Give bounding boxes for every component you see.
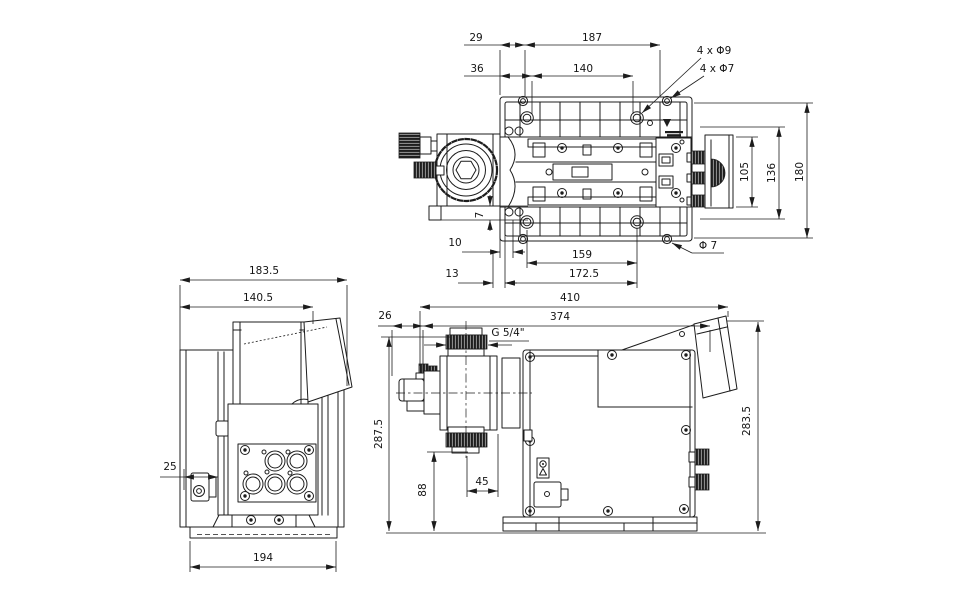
dosing-head-top xyxy=(399,133,500,220)
dim-26: 26 xyxy=(378,310,392,322)
discharge-valve xyxy=(446,328,487,356)
control-cube-front xyxy=(233,318,352,404)
knurled-knob-top xyxy=(414,162,436,178)
dim-287-5: 287.5 xyxy=(373,419,385,449)
dim-7: 7 xyxy=(474,212,486,219)
thread-label: G 5/4" xyxy=(491,327,524,339)
dim-283-5: 283.5 xyxy=(741,406,753,436)
control-cube-top xyxy=(687,135,733,208)
dim-10: 10 xyxy=(448,237,461,249)
dim-159: 159 xyxy=(572,249,592,261)
motor-gland-side xyxy=(399,364,440,414)
suction-valve xyxy=(446,427,487,453)
side-view: 410 26 374 G 5/4" 287.5 88 45 283.5 xyxy=(373,292,766,533)
dim-25: 25 xyxy=(163,461,176,473)
front-base xyxy=(190,527,337,538)
top-view: 29 187 36 140 4 x Φ9 4 x Φ7 105 136 180 … xyxy=(399,32,813,288)
dim-140: 140 xyxy=(573,63,593,75)
dim-136: 136 xyxy=(766,163,778,183)
dim-374: 374 xyxy=(550,311,570,323)
dim-29: 29 xyxy=(469,32,482,44)
dim-194: 194 xyxy=(253,552,273,564)
brand-marking xyxy=(665,131,683,133)
dim-180: 180 xyxy=(794,162,806,182)
dim-183-5: 183.5 xyxy=(249,265,279,277)
dim-13: 13 xyxy=(445,268,458,280)
dosing-head-side xyxy=(396,321,532,459)
dim-172-5: 172.5 xyxy=(569,268,599,280)
technical-drawing: 29 187 36 140 4 x Φ9 4 x Φ7 105 136 180 … xyxy=(0,0,976,600)
control-cube-side xyxy=(694,316,737,398)
front-view: 183.5 140.5 25 194 xyxy=(160,265,352,572)
dim-140-5: 140.5 xyxy=(243,292,273,304)
dim-105: 105 xyxy=(739,162,751,182)
dim-36: 36 xyxy=(470,63,484,75)
drawing-canvas: 29 187 36 140 4 x Φ9 4 x Φ7 105 136 180 … xyxy=(0,0,976,600)
side-housing xyxy=(523,324,709,517)
callout-dia7: Φ 7 xyxy=(699,240,717,252)
dim-187: 187 xyxy=(582,32,602,44)
callout-4x-dia7: 4 x Φ7 xyxy=(700,63,735,75)
cable-gland-top xyxy=(399,133,420,158)
callout-4x-dia9: 4 x Φ9 xyxy=(697,45,732,57)
dim-88: 88 xyxy=(417,483,429,496)
dim-410: 410 xyxy=(560,292,580,304)
dim-45: 45 xyxy=(475,476,488,488)
